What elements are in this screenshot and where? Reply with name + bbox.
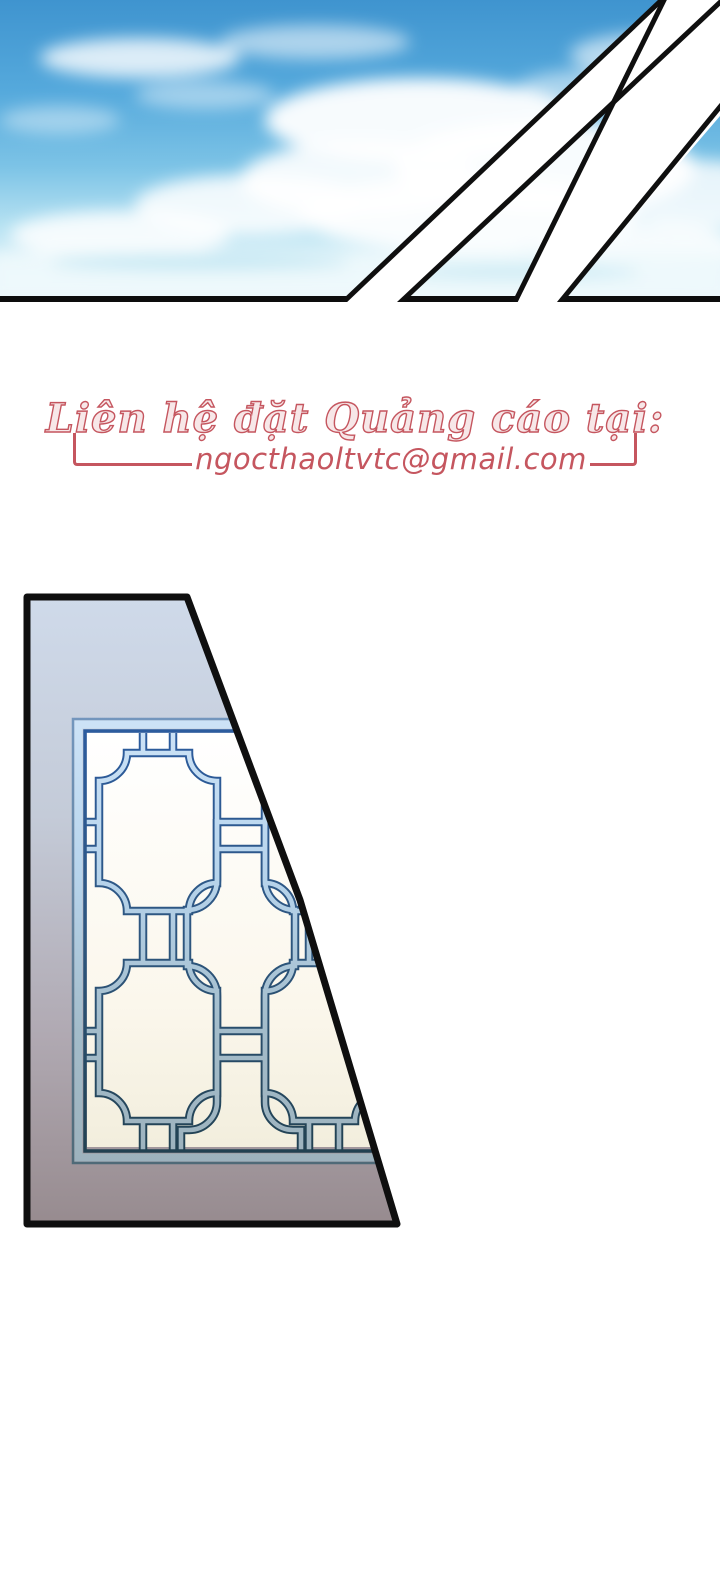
comic-page: Liên hệ đặt Quảng cáo tại: ngocthaoltvtc… bbox=[0, 0, 720, 1577]
ad-contact-block: Liên hệ đặt Quảng cáo tại: ngocthaoltvtc… bbox=[0, 394, 715, 478]
bracket-right-decoration bbox=[590, 433, 637, 466]
wall-window-panel-illustration bbox=[0, 560, 720, 1260]
ad-contact-email: ngocthaoltvtc@gmail.com bbox=[195, 442, 587, 476]
sky-panel-illustration bbox=[0, 0, 720, 302]
bracket-left-decoration bbox=[73, 433, 192, 466]
ad-contact-email-row: ngocthaoltvtc@gmail.com bbox=[0, 444, 715, 478]
